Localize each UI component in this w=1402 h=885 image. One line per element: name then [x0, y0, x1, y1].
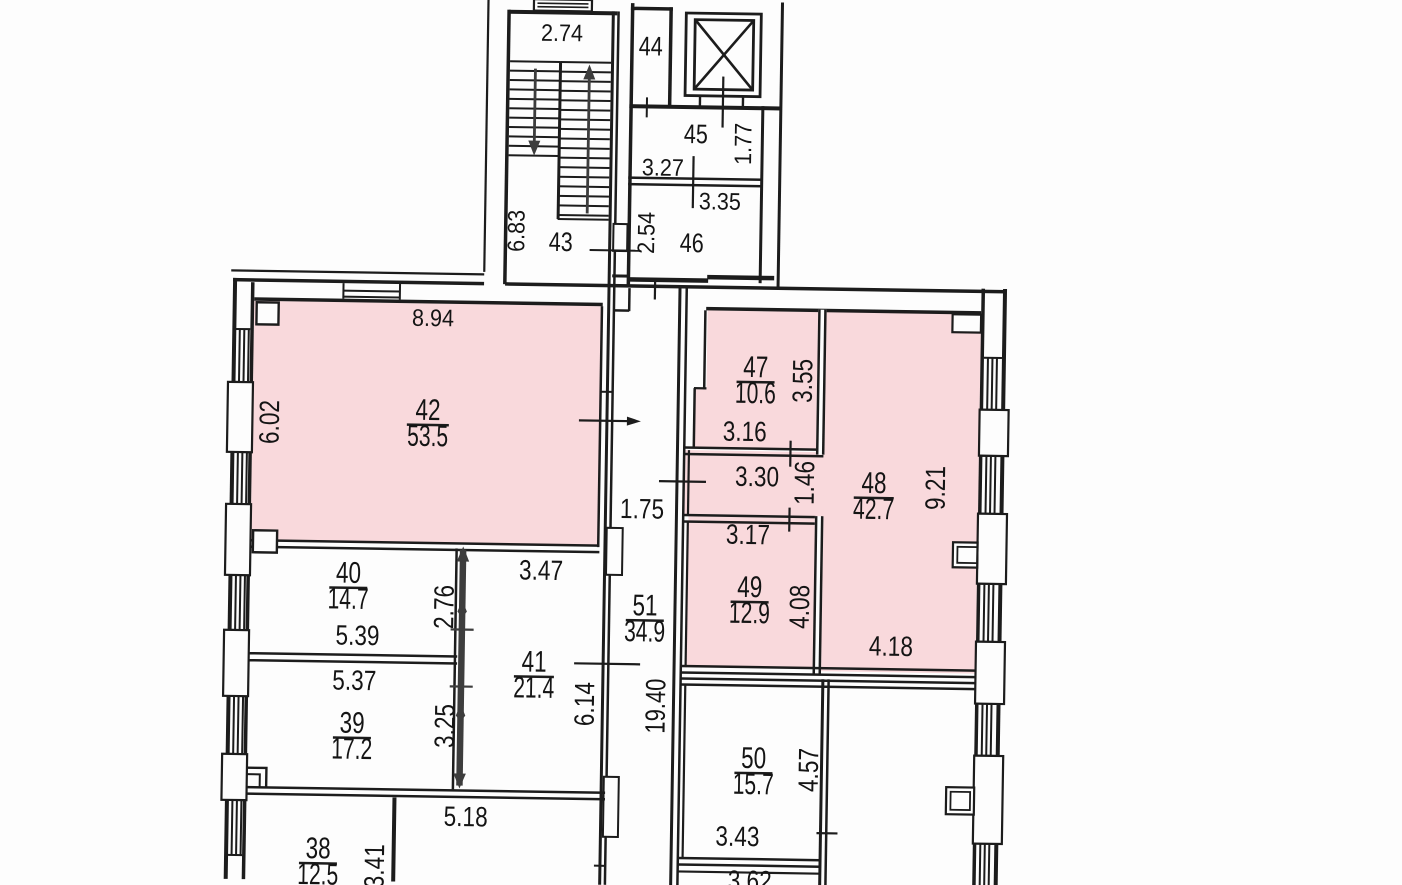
- svg-text:5.37: 5.37: [332, 665, 376, 697]
- svg-text:2.76: 2.76: [428, 585, 460, 629]
- svg-text:3.17: 3.17: [726, 519, 770, 551]
- svg-text:5.18: 5.18: [443, 801, 487, 833]
- svg-text:46: 46: [679, 228, 703, 258]
- svg-text:6.02: 6.02: [254, 400, 286, 444]
- svg-text:1.46: 1.46: [789, 461, 821, 505]
- svg-text:3.41: 3.41: [359, 844, 391, 885]
- svg-text:1.77: 1.77: [730, 123, 758, 165]
- svg-text:45: 45: [684, 119, 708, 149]
- svg-text:6.14: 6.14: [569, 682, 601, 726]
- svg-text:4.08: 4.08: [784, 585, 816, 629]
- svg-text:8.94: 8.94: [412, 305, 454, 333]
- svg-text:34.9: 34.9: [624, 615, 666, 649]
- svg-text:2.54: 2.54: [633, 212, 661, 254]
- svg-text:5.39: 5.39: [335, 620, 379, 652]
- svg-text:42.7: 42.7: [853, 493, 895, 527]
- svg-text:2.74: 2.74: [541, 20, 583, 48]
- svg-text:4.18: 4.18: [869, 630, 913, 662]
- svg-text:17.2: 17.2: [331, 732, 373, 766]
- svg-text:21.4: 21.4: [513, 671, 555, 705]
- svg-text:12.9: 12.9: [729, 597, 771, 631]
- svg-text:3.55: 3.55: [787, 359, 819, 403]
- svg-text:3.43: 3.43: [715, 821, 759, 853]
- svg-text:3.47: 3.47: [519, 554, 563, 586]
- svg-text:6.83: 6.83: [503, 210, 531, 252]
- svg-text:10.6: 10.6: [735, 377, 777, 411]
- svg-text:4.57: 4.57: [793, 748, 825, 792]
- svg-text:3.62: 3.62: [727, 865, 771, 885]
- svg-text:12.5: 12.5: [297, 858, 339, 885]
- svg-text:1.75: 1.75: [620, 493, 664, 525]
- svg-text:3.30: 3.30: [735, 461, 779, 493]
- svg-text:15.7: 15.7: [732, 768, 774, 802]
- svg-text:53.5: 53.5: [407, 420, 449, 454]
- svg-text:19.40: 19.40: [640, 678, 672, 733]
- svg-text:3.35: 3.35: [699, 188, 741, 216]
- svg-text:14.7: 14.7: [327, 582, 369, 616]
- svg-text:3.16: 3.16: [723, 416, 767, 448]
- svg-text:43: 43: [548, 227, 572, 257]
- svg-text:9.21: 9.21: [920, 466, 952, 510]
- svg-text:3.25: 3.25: [429, 704, 461, 748]
- svg-text:44: 44: [639, 31, 663, 61]
